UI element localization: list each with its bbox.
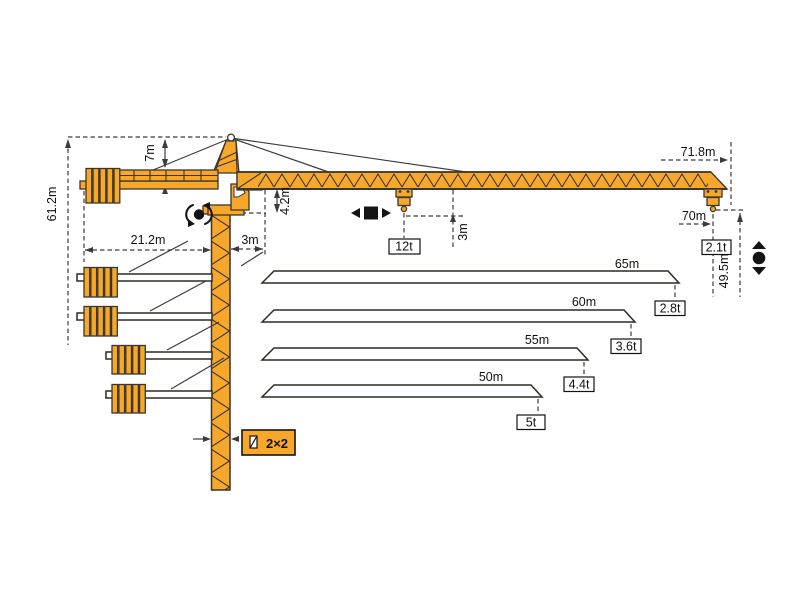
arrowhead (188, 219, 195, 227)
max-load-label: 12t (395, 240, 413, 254)
sheave (715, 190, 718, 193)
counterweight-slab (126, 385, 132, 414)
arrowhead (450, 214, 456, 222)
hoisting-icon (752, 241, 766, 275)
total-height-label: 61.2m (45, 187, 59, 222)
crane-diagram-svg: 65m 2.8t 60m 3.6t 55m 4.4t 50m 5t (0, 0, 800, 600)
head-height-label: 7m (143, 144, 157, 161)
jib-profile-55m (262, 348, 588, 360)
tip-trolley-hook (704, 189, 722, 212)
left-arrow (351, 208, 360, 218)
counterweight-slab (140, 385, 146, 414)
arrowhead (231, 246, 239, 252)
tip-load-label: 2.1t (706, 241, 727, 255)
trolley (704, 189, 722, 197)
tip-hook-radius-label: 70m (682, 209, 706, 223)
leader-line (150, 281, 206, 311)
jib-variant-length: 60m (572, 295, 596, 309)
tip-capacity-label: 4.4t (569, 378, 590, 392)
sheave (407, 190, 410, 193)
counterweight-slab (126, 346, 132, 375)
trolley-travel-icon (351, 207, 391, 220)
jib-length-variants: 65m 2.8t 60m 3.6t 55m 4.4t 50m 5t (262, 257, 685, 430)
jib-profile-65m (262, 271, 679, 283)
jib-profile-60m (262, 310, 635, 322)
jib-variant-length: 55m (525, 333, 549, 347)
tip-capacity-label: 5t (526, 416, 537, 430)
hook-block (707, 198, 719, 206)
counterweight-slab (107, 169, 113, 204)
jib-start-offset-label: 3m (241, 233, 258, 247)
tower-mast-lattice (212, 214, 231, 490)
counterweight-slab (112, 307, 118, 337)
arrowhead (720, 157, 728, 163)
arrowhead (231, 436, 239, 442)
hoist-dot (753, 252, 766, 265)
counterweight-slab (119, 385, 125, 414)
arrowhead (65, 139, 71, 148)
down-arrow (752, 267, 766, 275)
counterweight-slab (86, 169, 92, 204)
counterweight-options (77, 241, 224, 413)
counterweight-slab (140, 346, 146, 375)
right-arrow (382, 208, 391, 218)
counterweight-slab (112, 346, 118, 375)
sheave (707, 190, 710, 193)
hook (401, 206, 406, 211)
jib-root-height-label: 4.2m (278, 187, 292, 215)
jib-variant-length: 50m (479, 370, 503, 384)
jib-profile-50m (262, 385, 542, 397)
hook-block (398, 198, 410, 206)
crane-diagram: 65m 2.8t 60m 3.6t 55m 4.4t 50m 5t (0, 0, 800, 600)
counterweight-slab (105, 268, 111, 298)
leader-line (241, 252, 263, 266)
counterjib-counterweight (86, 169, 120, 204)
trolley (396, 189, 412, 197)
counterweight-slab (91, 307, 97, 337)
arrowhead (162, 159, 168, 168)
sheave (399, 190, 402, 193)
jib-lattice (258, 172, 708, 189)
hook (710, 206, 715, 211)
counterweight-slab (105, 307, 111, 337)
counterweight-slab (100, 169, 106, 204)
trolley-hook (396, 189, 412, 212)
arrowhead (203, 436, 211, 442)
counterweight-option-3 (106, 322, 219, 374)
counterweight-slab (91, 268, 97, 298)
counterweight-slab (133, 385, 139, 414)
counterweight-slab (112, 268, 118, 298)
jib-variant-60m: 60m 3.6t (262, 295, 641, 354)
arrowhead (737, 213, 743, 222)
counterweight-slab (114, 169, 120, 204)
jib-variant-55m: 55m 4.4t (262, 333, 594, 392)
jib-pendant-outer (231, 138, 487, 175)
counterweight-slab (93, 169, 99, 204)
counterweight-slab (98, 307, 104, 337)
jib-variant-50m: 50m 5t (262, 370, 545, 430)
tip-capacity-label: 3.6t (616, 340, 637, 354)
slewing-dot (194, 209, 204, 219)
hook-below-jib-label: 3m (456, 223, 470, 240)
apex-pivot (228, 134, 235, 141)
jib-variant-length: 65m (615, 257, 639, 271)
counterweight-slab (112, 385, 118, 414)
tip-capacity-label: 2.8t (660, 302, 681, 316)
jib-pendant-inner (231, 138, 340, 176)
counterweight-slab (119, 346, 125, 375)
hook-height-label: 49.5m (717, 254, 731, 289)
mast-section-label: 2×2 (266, 436, 288, 451)
counterweight-slab (84, 307, 90, 337)
jib-variant-65m: 65m 2.8t (262, 257, 685, 316)
arrowhead (85, 247, 93, 253)
trolley-square (364, 207, 378, 220)
counterweight-slab (84, 268, 90, 298)
counterjib-radius-label: 21.2m (131, 233, 166, 247)
up-arrow (752, 241, 766, 249)
arrowhead (203, 247, 211, 253)
max-radius-label: 71.8m (681, 145, 716, 159)
counterweight-slab (133, 346, 139, 375)
counterweight-slab (98, 268, 104, 298)
arrowhead (162, 139, 168, 148)
mast-section-callout: 2×2 (193, 430, 295, 455)
